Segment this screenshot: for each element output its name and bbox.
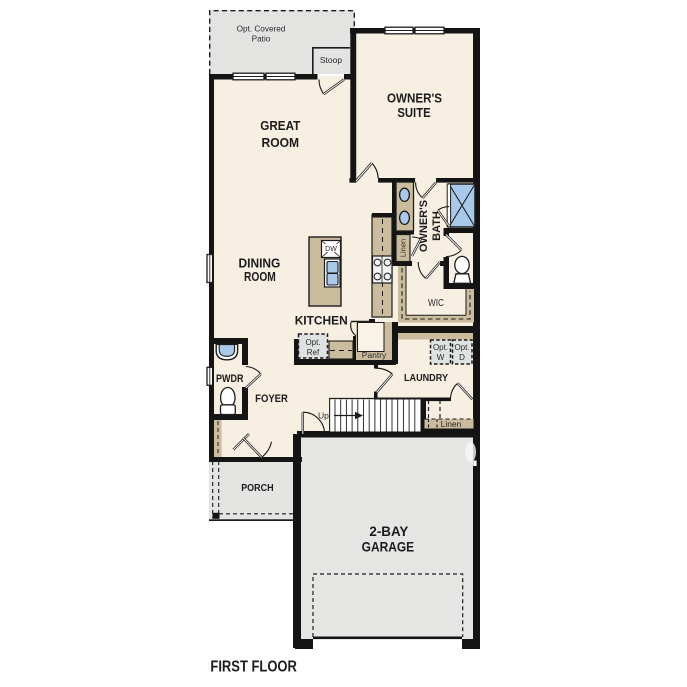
svg-text:Ref: Ref: [307, 348, 320, 357]
svg-text:W: W: [437, 353, 445, 362]
svg-text:DW: DW: [325, 246, 337, 253]
svg-text:GREAT: GREAT: [260, 118, 300, 133]
svg-text:SUITE: SUITE: [397, 106, 430, 120]
svg-text:PORCH: PORCH: [241, 483, 273, 494]
svg-text:GARAGE: GARAGE: [362, 540, 415, 555]
svg-text:Opt.: Opt.: [433, 343, 448, 352]
svg-text:OWNER'S: OWNER'S: [418, 200, 430, 252]
svg-text:ROOM: ROOM: [244, 269, 276, 284]
svg-text:PWDR: PWDR: [216, 373, 244, 385]
svg-text:Patio: Patio: [252, 35, 271, 44]
svg-text:Up: Up: [318, 411, 329, 421]
svg-text:2-BAY: 2-BAY: [369, 524, 408, 539]
svg-text:Opt. Covered: Opt. Covered: [237, 25, 286, 34]
svg-text:Opt.: Opt.: [305, 338, 320, 347]
svg-text:OWNER'S: OWNER'S: [387, 92, 442, 106]
svg-text:LAUNDRY: LAUNDRY: [404, 372, 448, 384]
svg-text:FIRST FLOOR: FIRST FLOOR: [210, 659, 297, 676]
svg-text:Opt.: Opt.: [454, 343, 469, 352]
svg-text:KITCHEN: KITCHEN: [295, 314, 348, 328]
svg-text:FOYER: FOYER: [255, 393, 288, 405]
svg-text:WIC: WIC: [428, 298, 444, 309]
svg-text:Linen: Linen: [399, 239, 408, 257]
svg-text:Stoop: Stoop: [320, 55, 342, 65]
svg-text:Linen: Linen: [441, 419, 462, 429]
svg-text:D: D: [459, 353, 465, 362]
svg-text:ROOM: ROOM: [262, 135, 300, 150]
svg-text:Pantry: Pantry: [362, 350, 387, 360]
